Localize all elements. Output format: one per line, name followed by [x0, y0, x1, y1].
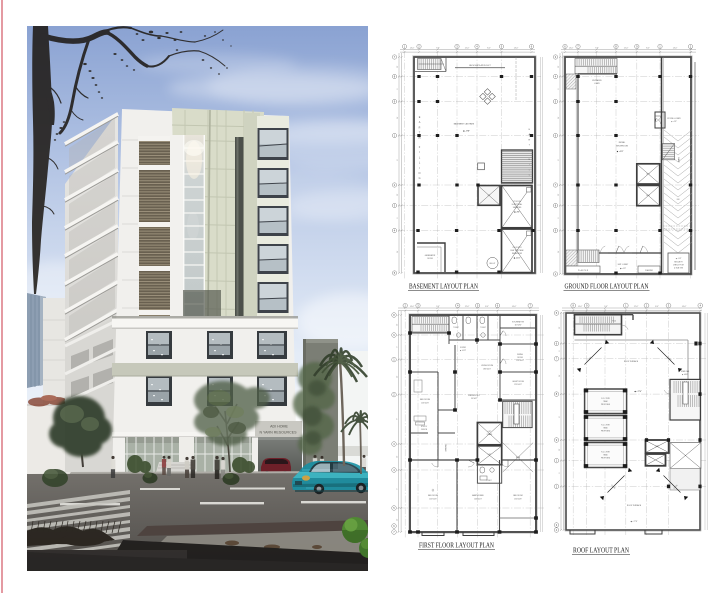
svg-text:R.C.C WTR: R.C.C WTR — [601, 398, 610, 400]
svg-text:E: E — [529, 129, 531, 131]
svg-text:ELECTRICAL: ELECTRICAL — [512, 203, 522, 206]
svg-text:BED ROOM: BED ROOM — [428, 495, 438, 497]
svg-text:ROOM: ROOM — [517, 357, 523, 359]
svg-text:LT ROOM: LT ROOM — [513, 201, 521, 203]
svg-text:N YARN RESOURCES: N YARN RESOURCES — [259, 431, 297, 435]
svg-text:9′-6″: 9′-6″ — [604, 306, 608, 308]
svg-text:ENTRANCE: ENTRANCE — [592, 79, 602, 82]
svg-text:12′0″x11′0″: 12′0″x11′0″ — [514, 384, 522, 386]
svg-text:14′-0″: 14′-0″ — [512, 306, 517, 308]
svg-text:BASEMENT LAYOUT PLAN: BASEMENT LAYOUT PLAN — [409, 282, 479, 291]
svg-text:GUEST ROOM: GUEST ROOM — [512, 381, 524, 383]
svg-text:◆ +1′6″: ◆ +1′6″ — [671, 120, 677, 123]
svg-text:9′-6″: 9′-6″ — [595, 48, 599, 50]
svg-text:STUDY/: STUDY/ — [421, 426, 428, 428]
svg-text:OFFICE: OFFICE — [421, 429, 428, 431]
svg-text:9′-6″: 9′-6″ — [436, 306, 440, 308]
svg-text:9′0″x8′0″: 9′0″x8′0″ — [471, 398, 478, 400]
svg-text:M.BR: M.BR — [516, 457, 521, 459]
svg-text:11′0″x8′0″: 11′0″x8′0″ — [515, 325, 522, 327]
svg-text:PLANTER: PLANTER — [645, 269, 654, 272]
svg-text:◆ +80′0″: ◆ +80′0″ — [682, 373, 689, 376]
svg-text:DN: DN — [677, 199, 680, 201]
svg-text:◆ +77′0″: ◆ +77′0″ — [631, 520, 638, 523]
svg-text:A: A — [419, 121, 421, 124]
svg-text:GROUND FLOOR LAYOUT PLAN: GROUND FLOOR LAYOUT PLAN — [565, 282, 650, 291]
svg-text:ENT. LOBBY: ENT. LOBBY — [618, 264, 629, 266]
svg-text:LIFT: LIFT — [488, 431, 491, 433]
svg-text:◆ +77′0″: ◆ +77′0″ — [634, 390, 642, 393]
svg-text:14′-0″: 14′-0″ — [673, 48, 678, 50]
svg-text:RETAIL: RETAIL — [619, 141, 625, 144]
svg-text:R.C.C WTR: R.C.C WTR — [601, 452, 610, 454]
svg-text:LIFT: LIFT — [646, 195, 649, 197]
svg-text:8′-0″: 8′-0″ — [655, 306, 659, 308]
svg-text:12′0″x10′6″: 12′0″x10′6″ — [516, 360, 524, 362]
svg-text:ROOM: ROOM — [427, 258, 433, 260]
svg-text:KITCHENETTE: KITCHENETTE — [512, 322, 525, 324]
svg-text:MASTER BED: MASTER BED — [472, 494, 484, 497]
svg-text:TOILET: TOILET — [486, 480, 491, 482]
svg-text:◆ -9′6″: ◆ -9′6″ — [463, 130, 470, 133]
svg-text:TOILET: TOILET — [480, 327, 486, 329]
svg-text:L: L — [419, 162, 421, 165]
svg-text:14′-0″: 14′-0″ — [514, 48, 519, 50]
svg-text:12′-0″: 12′-0″ — [624, 48, 629, 50]
svg-text:I: I — [419, 167, 420, 170]
svg-text:12′-0″: 12′-0″ — [465, 48, 470, 50]
svg-text:R.C.C WTR: R.C.C WTR — [601, 425, 610, 427]
svg-text:TOILET: TOILET — [453, 327, 459, 329]
svg-text:L: L — [419, 156, 421, 159]
svg-text:14′-0″: 14′-0″ — [410, 48, 415, 50]
svg-text:◆ -9′6″: ◆ -9′6″ — [514, 211, 520, 214]
svg-text:SECURITY: SECURITY — [674, 262, 683, 264]
svg-text:9′-6″: 9′-6″ — [436, 48, 440, 50]
svg-text:8′-0″: 8′-0″ — [487, 48, 491, 50]
svg-text:ADI HOME: ADI HOME — [270, 425, 288, 429]
svg-text:◆ +12′6″: ◆ +12′6″ — [460, 349, 467, 352]
svg-text:GENERATOR: GENERATOR — [425, 254, 436, 257]
svg-text:14′0″x12′0″: 14′0″x12′0″ — [474, 499, 482, 501]
svg-text:14′-0″: 14′-0″ — [569, 48, 574, 50]
svg-text:MECH VENTILATION DUCT: MECH VENTILATION DUCT — [469, 64, 491, 67]
svg-text:PROPOSED: PROPOSED — [601, 431, 611, 433]
svg-text:18′0″x14′0″: 18′0″x14′0″ — [483, 369, 491, 371]
svg-text:◆ +1′6″: ◆ +1′6″ — [620, 267, 626, 270]
svg-text:8′-0″: 8′-0″ — [646, 48, 650, 50]
svg-text:G: G — [419, 177, 421, 180]
svg-text:LIFT: LIFT — [646, 174, 649, 176]
svg-text:8′-0″: 8′-0″ — [485, 306, 489, 308]
svg-text:& SUB STN: & SUB STN — [674, 268, 684, 270]
svg-text:14′-0″: 14′-0″ — [578, 306, 583, 308]
svg-text:FIRST FLOOR LAYOUT PLAN: FIRST FLOOR LAYOUT PLAN — [419, 541, 495, 550]
svg-text:Ⓜ: Ⓜ — [432, 488, 435, 492]
svg-text:N: N — [419, 172, 421, 175]
svg-text:PROPOSED: PROPOSED — [601, 458, 611, 460]
svg-text:BEL.4T: BEL.4T — [490, 263, 496, 265]
svg-text:STORE & LOBBY: STORE & LOBBY — [667, 118, 681, 120]
svg-text:SLOPE: SLOPE — [610, 484, 616, 490]
svg-text:R: R — [419, 126, 421, 129]
svg-text:RAMP: RAMP — [677, 157, 680, 163]
svg-text:ROOF TERRACE: ROOF TERRACE — [624, 360, 639, 363]
svg-text:BED ROOM: BED ROOM — [420, 399, 430, 401]
svg-text:14′-0″: 14′-0″ — [682, 306, 687, 308]
svg-text:COLD WTR: COLD WTR — [513, 247, 523, 249]
svg-text:12′-0″: 12′-0″ — [465, 306, 470, 308]
svg-text:◆ +1′6″: ◆ +1′6″ — [676, 257, 682, 260]
svg-text:LIFT: LIFT — [488, 454, 491, 456]
svg-text:◆ +1′6″: ◆ +1′6″ — [617, 150, 624, 153]
svg-text:ROOF TERRACE: ROOF TERRACE — [627, 504, 642, 507]
svg-text:LOBBY: LOBBY — [594, 83, 601, 85]
svg-text:PASSAGE: PASSAGE — [444, 444, 447, 452]
svg-text:T: T — [529, 145, 531, 147]
svg-text:14′-0″: 14′-0″ — [410, 306, 415, 308]
svg-text:BED ROOM: BED ROOM — [513, 495, 523, 497]
svg-text:SHOWROOM: SHOWROOM — [616, 146, 628, 148]
svg-text:P L A N T E R: P L A N T E R — [578, 269, 589, 272]
svg-text:CHECK POST: CHECK POST — [673, 265, 684, 267]
svg-text:SERVICES: SERVICES — [513, 207, 522, 209]
svg-text:12′-0″: 12′-0″ — [634, 306, 639, 308]
svg-text:12′0″x10′6″: 12′0″x10′6″ — [421, 403, 429, 405]
svg-text:R: R — [529, 139, 531, 141]
svg-text:RESERVOIR: RESERVOIR — [512, 253, 523, 255]
svg-text:DRESS/STUDY: DRESS/STUDY — [468, 395, 481, 397]
svg-text:12′0″x11′6″: 12′0″x11′6″ — [429, 499, 437, 501]
svg-text:F: F — [419, 146, 421, 149]
svg-text:PROPOSED: PROPOSED — [601, 404, 611, 406]
svg-text:ROOF LAYOUT PLAN: ROOF LAYOUT PLAN — [573, 546, 630, 555]
svg-text:E: E — [419, 116, 421, 119]
svg-text:DINING: DINING — [517, 354, 524, 356]
svg-text:FOYER: FOYER — [460, 347, 467, 349]
svg-text:FLAT WTR TANK: FLAT WTR TANK — [510, 249, 524, 252]
svg-text:LIVING ROOM: LIVING ROOM — [481, 365, 493, 367]
svg-text:11′0″x10′6″: 11′0″x10′6″ — [514, 499, 522, 501]
svg-text:I: I — [419, 151, 420, 154]
svg-text:◆ -11′0″: ◆ -11′0″ — [514, 257, 521, 260]
svg-text:BASEMENT CAR PARK: BASEMENT CAR PARK — [454, 123, 475, 126]
svg-text:H: H — [419, 137, 421, 140]
